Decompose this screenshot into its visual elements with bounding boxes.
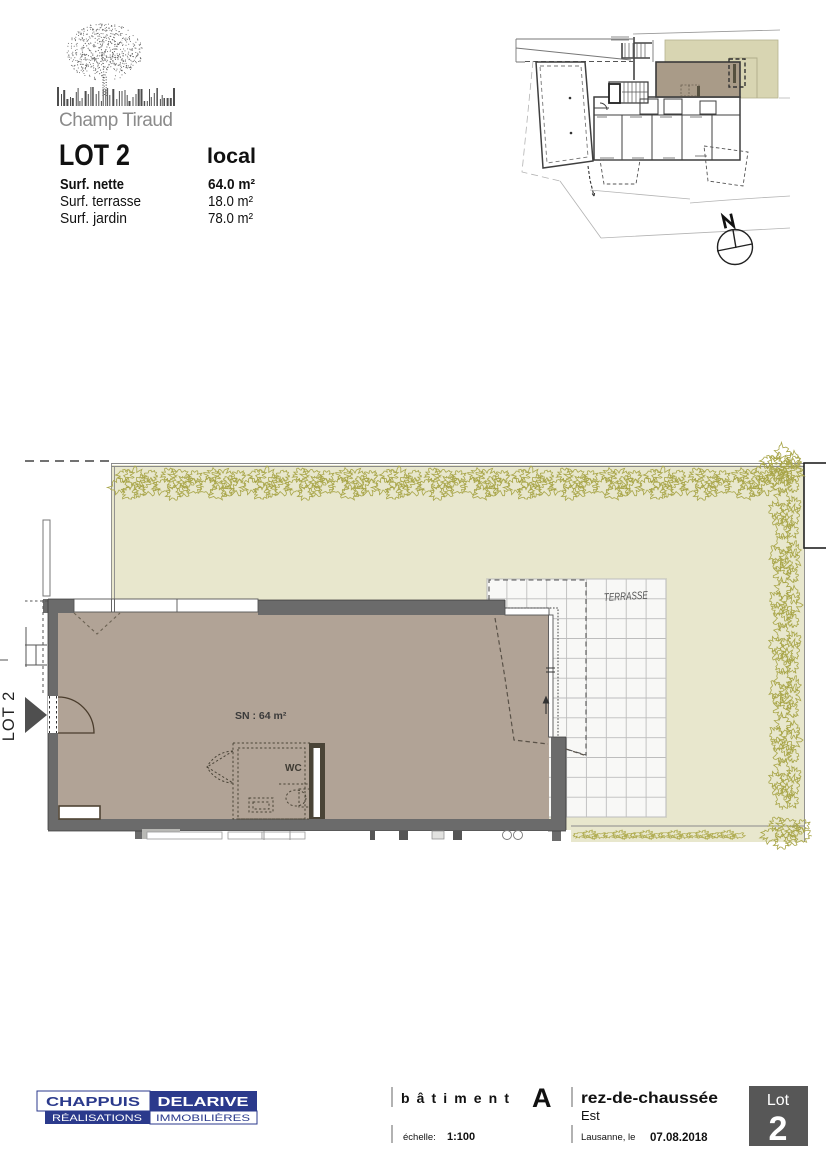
svg-text:LOT 2: LOT 2 bbox=[59, 139, 130, 172]
svg-text:IMMOBILIÈRES: IMMOBILIÈRES bbox=[156, 1113, 250, 1123]
svg-text:local: local bbox=[207, 145, 256, 168]
svg-text:07.08.2018: 07.08.2018 bbox=[650, 1132, 708, 1144]
svg-text:Est: Est bbox=[581, 1108, 600, 1123]
svg-text:A: A bbox=[532, 1083, 552, 1113]
svg-text:Surf. nette: Surf. nette bbox=[60, 177, 124, 193]
svg-text:CHAPPUIS: CHAPPUIS bbox=[46, 1094, 140, 1109]
svg-text:Lausanne, le: Lausanne, le bbox=[581, 1132, 635, 1143]
svg-text:18.0 m²: 18.0 m² bbox=[208, 194, 253, 210]
svg-text:64.0 m²: 64.0 m² bbox=[208, 177, 255, 193]
svg-text:bâtiment: bâtiment bbox=[401, 1090, 509, 1106]
svg-text:SN : 64 m²: SN : 64 m² bbox=[235, 710, 287, 722]
svg-text:TERRASSE: TERRASSE bbox=[604, 590, 649, 604]
svg-text:Surf. terrasse: Surf. terrasse bbox=[60, 194, 141, 210]
svg-text:1:100: 1:100 bbox=[447, 1131, 475, 1143]
svg-text:WC: WC bbox=[285, 763, 302, 774]
svg-text:échelle:: échelle: bbox=[403, 1132, 436, 1143]
svg-text:78.0 m²: 78.0 m² bbox=[208, 211, 253, 227]
svg-text:Champ Tiraud: Champ Tiraud bbox=[59, 110, 174, 131]
svg-text:DELARIVE: DELARIVE bbox=[158, 1094, 249, 1109]
svg-text:LOT 2: LOT 2 bbox=[0, 691, 18, 742]
svg-text:Lot: Lot bbox=[767, 1092, 790, 1109]
svg-text:rez-de-chaussée: rez-de-chaussée bbox=[581, 1090, 718, 1107]
svg-text:Surf. jardin: Surf. jardin bbox=[60, 211, 127, 227]
svg-text:2: 2 bbox=[769, 1110, 788, 1148]
svg-text:RÉALISATIONS: RÉALISATIONS bbox=[52, 1113, 142, 1123]
